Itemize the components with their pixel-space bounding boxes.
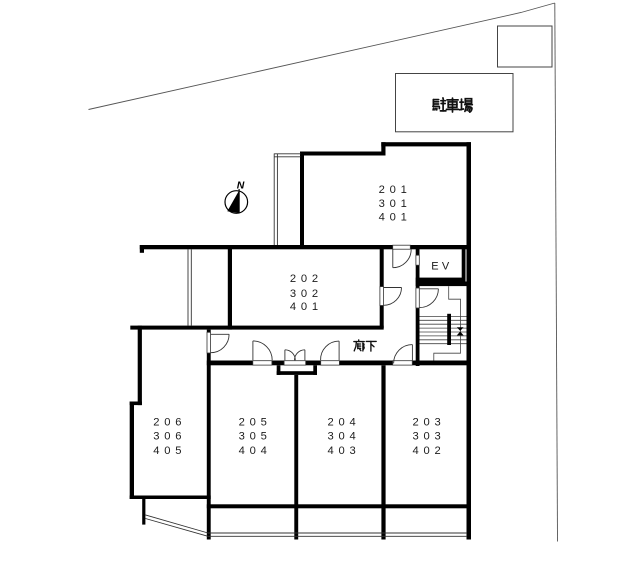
svg-text:302: 302 bbox=[290, 288, 323, 300]
svg-text:305: 305 bbox=[239, 431, 272, 443]
svg-text:205: 205 bbox=[239, 416, 272, 428]
svg-text:405: 405 bbox=[153, 445, 186, 457]
svg-text:201: 201 bbox=[379, 184, 412, 196]
svg-text:301: 301 bbox=[379, 198, 412, 210]
svg-text:204: 204 bbox=[328, 416, 361, 428]
svg-text:303: 303 bbox=[413, 431, 446, 443]
svg-text:401: 401 bbox=[290, 301, 323, 313]
svg-text:206: 206 bbox=[153, 416, 186, 428]
svg-text:203: 203 bbox=[413, 416, 446, 428]
svg-text:N: N bbox=[237, 180, 245, 192]
svg-text:EV: EV bbox=[431, 261, 452, 273]
svg-text:401: 401 bbox=[379, 212, 412, 224]
svg-text:202: 202 bbox=[290, 273, 323, 285]
svg-text:402: 402 bbox=[413, 445, 446, 457]
svg-text:403: 403 bbox=[328, 445, 361, 457]
svg-text:306: 306 bbox=[153, 431, 186, 443]
svg-text:404: 404 bbox=[239, 445, 272, 457]
svg-text:304: 304 bbox=[328, 431, 361, 443]
